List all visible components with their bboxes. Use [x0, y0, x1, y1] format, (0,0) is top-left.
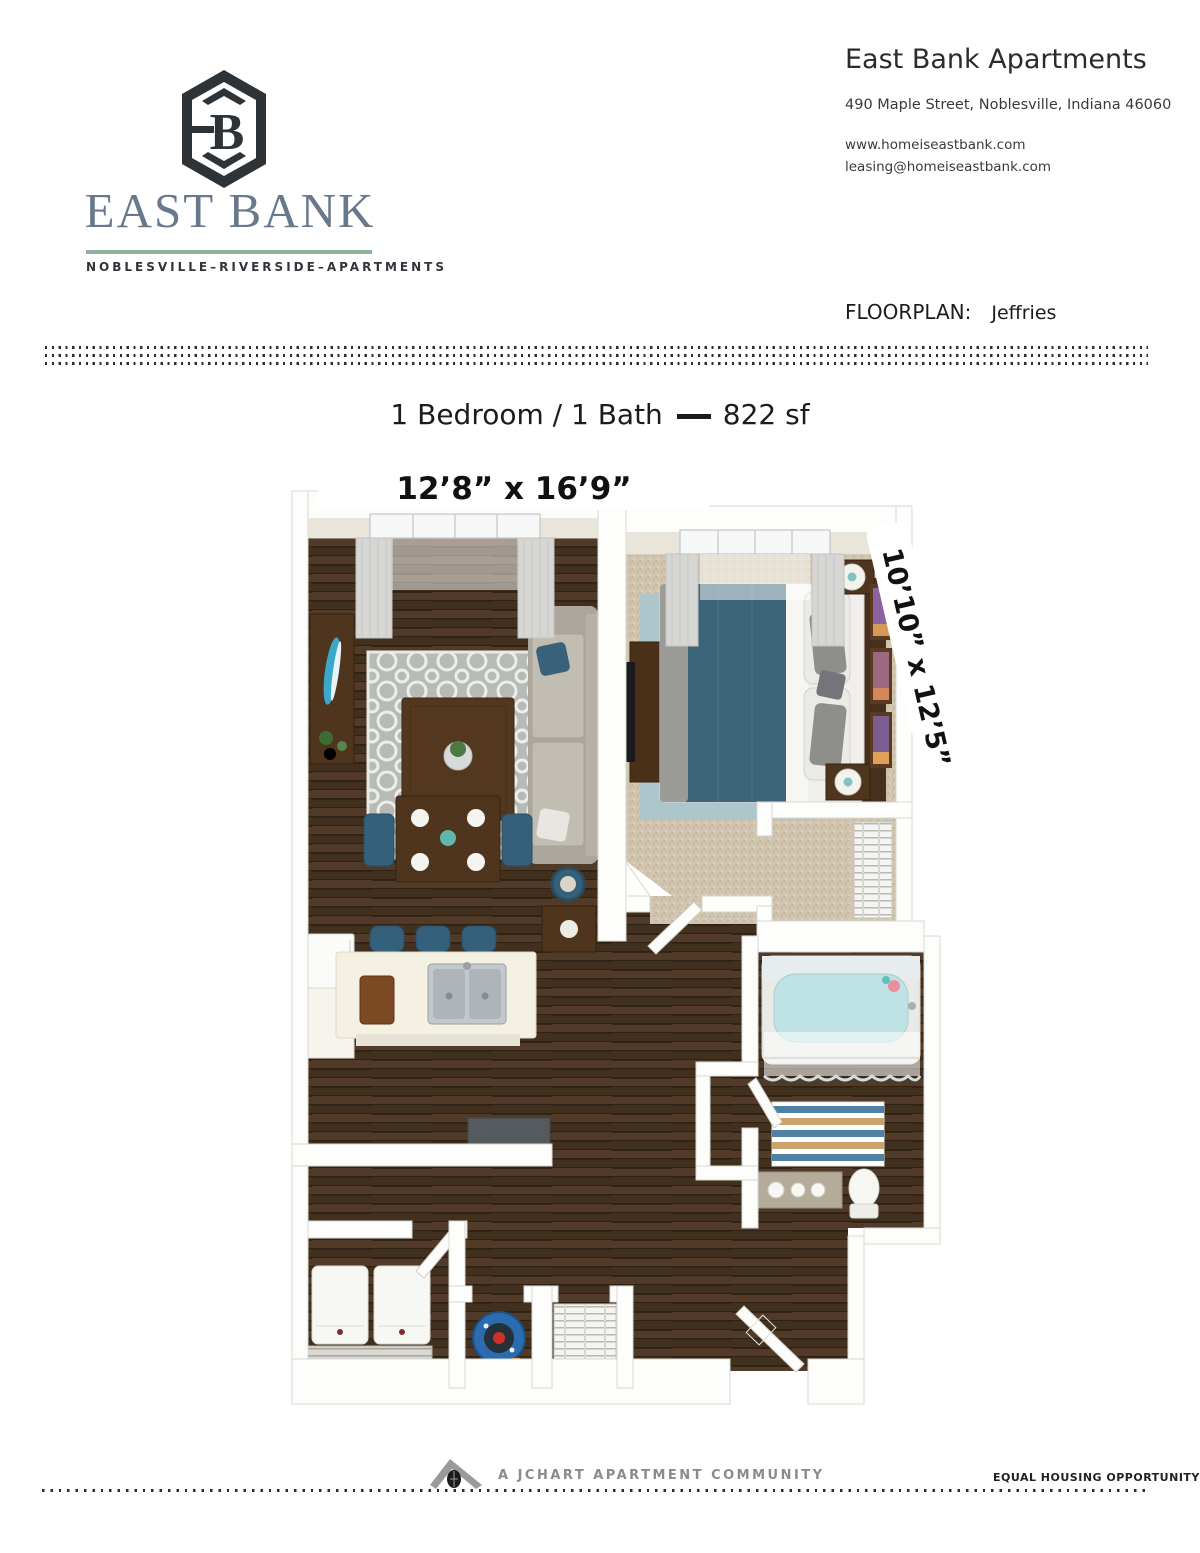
bathtub-water: [774, 974, 908, 1042]
wall-closets-top: [449, 1286, 472, 1302]
plate: [467, 809, 485, 827]
curtain-panel: [518, 538, 554, 638]
vanity-sink: [811, 1183, 825, 1197]
unit-summary: 1 Bedroom / 1 Bath: [390, 398, 662, 431]
dryer-knob: [399, 1329, 405, 1335]
unit-title: 1 Bedroom / 1 Bath 822 sf: [0, 398, 1200, 431]
curtain-panel: [356, 538, 392, 638]
plate: [411, 853, 429, 871]
rug-stripe: [772, 1130, 884, 1137]
wall-bottom-right: [808, 1359, 864, 1404]
wall-laundry-right: [449, 1221, 465, 1388]
curtain-panel: [666, 554, 698, 646]
footer-community: A JCHART APARTMENT COMMUNITY: [498, 1468, 825, 1483]
bath-toy: [882, 976, 890, 984]
wall-left-outer: [292, 491, 308, 1388]
wall-linen-left: [696, 1062, 710, 1180]
rug-stripe: [772, 1118, 884, 1125]
toilet: [849, 1169, 879, 1207]
unit-area: 822 sf: [723, 398, 810, 431]
water-heater-dot: [510, 1348, 515, 1353]
wall-bedroom-bottom: [626, 896, 650, 912]
water-heater-valve: [493, 1332, 505, 1344]
art-frame-canvas: [873, 688, 889, 700]
vanity-sink: [768, 1182, 784, 1198]
water-heater-dot: [484, 1324, 489, 1329]
contact-block: East Bank Apartments 490 Maple Street, N…: [845, 44, 1175, 178]
lamp-base: [848, 573, 857, 582]
property-website: www.homeiseastbank.com: [845, 135, 1175, 157]
faucet: [463, 962, 471, 970]
logo-wordmark: EAST BANK: [84, 182, 376, 239]
wall-closet-bath: [757, 921, 924, 952]
dotted-row: [45, 354, 1148, 357]
wire-shelving: [854, 822, 892, 918]
side-table-lamp: [560, 920, 578, 938]
footer-dotted-line: [42, 1489, 1150, 1492]
sofa-pillow-blue: [535, 641, 571, 677]
property-title: East Bank Apartments: [845, 44, 1175, 75]
dining-chair: [364, 814, 394, 866]
dotted-row: [45, 346, 1148, 349]
living-dimensions: 12’8” x 16’9”: [396, 471, 631, 507]
bath-toy: [888, 980, 900, 992]
vase-plant: [450, 741, 466, 757]
plant: [337, 741, 347, 751]
wall-linen-bottom: [696, 1166, 758, 1180]
wall-right-bath: [924, 936, 940, 1244]
range: [468, 1118, 550, 1146]
curtain-panel: [812, 554, 844, 646]
vanity-sink: [791, 1183, 805, 1197]
bath-rug: [772, 1102, 884, 1166]
wall-bath-left: [742, 936, 758, 1066]
wall-laundry-top: [308, 1221, 412, 1238]
wall-bath-bottom: [864, 1228, 940, 1244]
logo-letter: B: [210, 104, 245, 161]
sink-drain: [482, 993, 489, 1000]
bedroom-tv: [626, 662, 635, 762]
wall-kitchen-half: [292, 1144, 552, 1166]
dining-chair: [502, 814, 532, 866]
footer-eho: EQUAL HOUSING OPPORTUNITY: [993, 1471, 1200, 1484]
property-email: leasing@homeiseastbank.com: [845, 157, 1175, 179]
wall-divider: [598, 491, 626, 941]
plate: [411, 809, 429, 827]
table-centerpiece: [440, 830, 456, 846]
logo-green-rule: [86, 250, 372, 254]
bar-stool: [370, 926, 404, 952]
sheer-curtain: [392, 538, 518, 590]
art-frame-canvas: [873, 624, 889, 636]
wire-shelf-support: [878, 822, 880, 918]
dotted-divider: [45, 346, 1148, 370]
floorplan-label: FLOORPLAN:: [845, 300, 971, 324]
rug-stripe: [772, 1106, 884, 1113]
wall-linen-top: [696, 1062, 758, 1076]
sink-drain: [446, 993, 453, 1000]
accent-chair-cushion: [560, 876, 576, 892]
rug-stripe: [772, 1142, 884, 1149]
rug-stripe: [772, 1154, 884, 1161]
toilet-tank: [850, 1204, 878, 1218]
wall-coat-closet-right: [617, 1286, 633, 1388]
shower-curtain: [764, 1032, 920, 1076]
island-base: [356, 1034, 520, 1046]
logo-tagline: NOBLESVILLE–RIVERSIDE–APARTMENTS: [86, 260, 372, 274]
floorplan-name: Jeffries: [991, 302, 1056, 324]
floorplan-rendering: 12’8” x 16’9” 10’10” x 12’5”: [252, 466, 972, 1406]
walk-in-closet: [854, 822, 892, 918]
eastbank-hexagon-logo-icon: B: [180, 68, 268, 190]
wire-shelf-support: [862, 822, 864, 918]
plant-pot: [324, 748, 336, 760]
floorplan-row: FLOORPLAN: Jeffries: [845, 300, 1056, 324]
bar-stool: [416, 926, 450, 952]
sofa-pillow-white: [536, 808, 571, 843]
pillow-gray: [809, 702, 847, 767]
dotted-row: [45, 362, 1148, 365]
property-address: 490 Maple Street, Noblesville, Indiana 4…: [845, 97, 1175, 113]
unit-title-dash: [677, 414, 711, 419]
washer-knob: [337, 1329, 343, 1335]
pillow-accent: [816, 670, 847, 701]
bar-stool: [462, 926, 496, 952]
wall-closet-left: [757, 802, 772, 836]
plate: [467, 853, 485, 871]
sofa-back: [586, 614, 598, 856]
duvet-blue: [686, 584, 786, 802]
wall-closets-mid: [532, 1286, 552, 1388]
lamp-base: [844, 778, 853, 787]
art-frame-canvas: [873, 752, 889, 764]
plant: [319, 731, 333, 745]
jchart-house-icon: [428, 1455, 486, 1489]
wall-bottom-left: [292, 1359, 730, 1404]
sheer-curtain: [700, 554, 810, 600]
flyer-page: B EAST BANK NOBLESVILLE–RIVERSIDE–APARTM…: [0, 0, 1200, 1553]
faucet: [908, 1002, 916, 1010]
cutting-board: [360, 976, 394, 1024]
wall-closet-top: [772, 802, 912, 818]
